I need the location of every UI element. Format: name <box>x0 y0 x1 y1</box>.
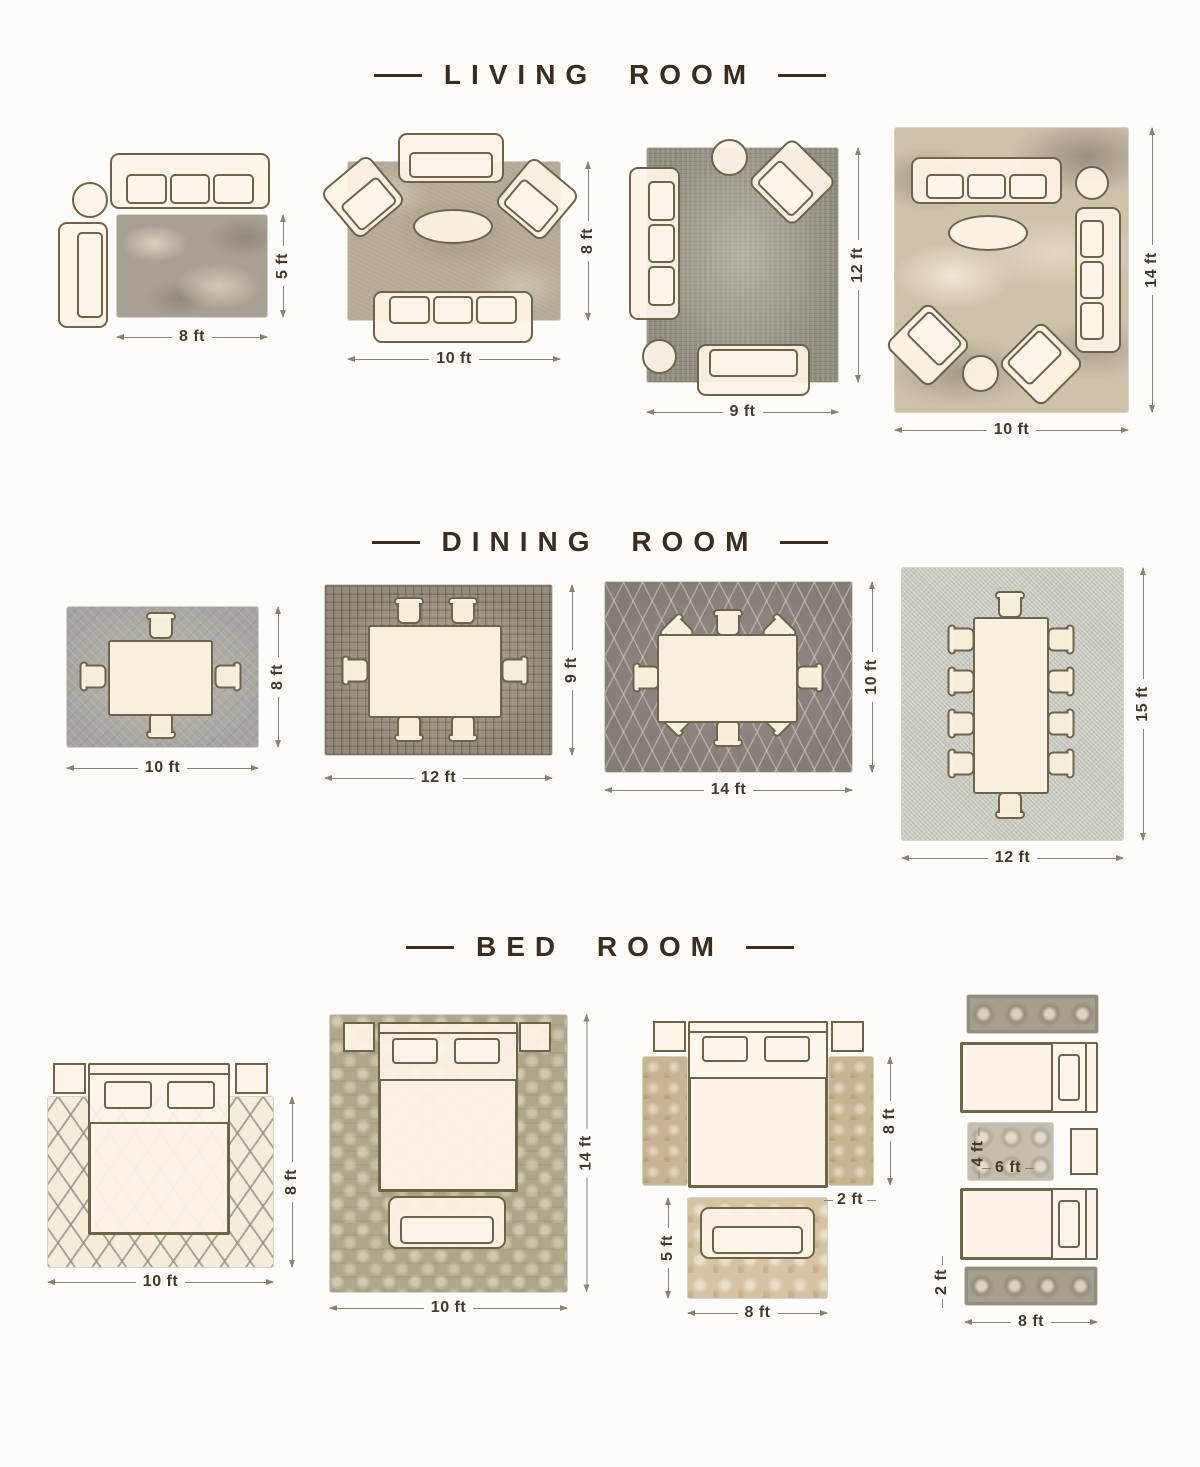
rug <box>117 215 267 317</box>
dining-chair <box>448 597 478 624</box>
pillow <box>454 1038 500 1064</box>
foot-rug-width-dimension: 8 ft <box>688 1303 827 1323</box>
headboard <box>379 1024 517 1034</box>
pillow <box>702 1036 748 1062</box>
runner-width-dimension: 2 ft <box>824 1190 882 1210</box>
height-dimension: 15 ft <box>1133 568 1153 840</box>
sofa <box>110 153 270 209</box>
dining-chair <box>394 715 424 742</box>
width-dimension: 12 ft <box>902 848 1123 868</box>
pillow <box>764 1036 810 1062</box>
pillow <box>1058 1200 1080 1248</box>
rug-size-guide: LIVING ROOM DINING ROOM BED ROOM 8 ft 5 … <box>0 0 1200 1467</box>
width-dimension: 10 ft <box>330 1298 567 1318</box>
runner-height-dimension: 8 ft <box>880 1057 900 1185</box>
duvet <box>961 1189 1053 1259</box>
foot-rug-height-dimension: 5 ft <box>658 1198 678 1298</box>
side-table <box>1075 166 1109 200</box>
sofa-cushions <box>409 152 493 179</box>
sofa-cushions <box>126 174 254 204</box>
twin-bed <box>960 1188 1098 1260</box>
side-table <box>962 355 999 392</box>
twin-bed <box>960 1042 1098 1113</box>
title-dash <box>374 74 422 77</box>
height-dimension: 8 ft <box>268 607 288 747</box>
coffee-table <box>948 215 1028 251</box>
nightstand <box>235 1063 268 1094</box>
dining-chair <box>948 749 975 779</box>
width-dimension: 14 ft <box>605 780 852 800</box>
loveseat <box>398 133 504 183</box>
headboard <box>1085 1043 1096 1112</box>
section-title-living-room: LIVING ROOM <box>0 59 1200 91</box>
dining-chair <box>342 656 369 686</box>
sofa <box>911 157 1062 204</box>
headboard <box>89 1065 229 1075</box>
nightstand <box>1070 1128 1098 1175</box>
dining-chair <box>797 663 824 693</box>
section-title-text: DINING ROOM <box>442 526 759 558</box>
dining-chair <box>146 712 176 739</box>
nightstand <box>343 1022 375 1052</box>
section-title-bed-room: BED ROOM <box>0 931 1200 963</box>
runner-rug <box>967 995 1098 1033</box>
sofa-cushions <box>389 296 517 324</box>
height-dimension: 14 ft <box>577 1015 597 1292</box>
dining-chair <box>995 591 1025 618</box>
runner-rug <box>965 1267 1097 1305</box>
sofa-cushions <box>712 1226 803 1254</box>
nightstand <box>831 1021 864 1052</box>
bed <box>688 1021 828 1188</box>
dining-chair <box>713 609 743 636</box>
loveseat <box>697 344 810 396</box>
dining-chair <box>633 663 660 693</box>
title-dash <box>406 946 454 949</box>
runner-rug <box>643 1057 687 1185</box>
title-dash <box>746 946 794 949</box>
oval-dining-table <box>657 634 798 723</box>
side-table <box>642 339 677 374</box>
sofa-cushions <box>926 174 1047 199</box>
runner-height-dimension: 2 ft <box>932 1264 952 1308</box>
height-dimension: 9 ft <box>562 585 582 755</box>
dining-chair <box>502 656 529 686</box>
sofa-cushions <box>648 181 675 306</box>
height-dimension: 8 ft <box>578 162 598 320</box>
coffee-table <box>413 209 493 244</box>
dining-chair <box>713 720 743 747</box>
dining-chair <box>948 667 975 697</box>
height-dimension: 8 ft <box>282 1097 302 1267</box>
width-dimension: 8 ft <box>117 327 267 347</box>
headboard <box>1085 1189 1096 1259</box>
dining-chair <box>1048 625 1075 655</box>
title-dash <box>778 74 826 77</box>
section-title-text: BED ROOM <box>476 931 724 963</box>
height-dimension: 14 ft <box>1142 128 1162 412</box>
nightstand <box>519 1022 551 1052</box>
width-dimension: 10 ft <box>67 758 258 778</box>
sofa-cushions <box>709 349 798 377</box>
width-dimension: 10 ft <box>348 349 560 369</box>
loveseat <box>58 222 108 328</box>
height-dimension: 10 ft <box>862 582 882 772</box>
loveseat <box>700 1207 815 1259</box>
between-rug-width-dimension: 6 ft <box>982 1158 1044 1178</box>
duvet <box>379 1079 517 1191</box>
dining-chair <box>995 792 1025 819</box>
dining-table <box>973 617 1049 794</box>
sofa-cushions <box>1080 220 1104 339</box>
dining-chair <box>1048 709 1075 739</box>
dining-chair <box>948 625 975 655</box>
dining-chair <box>948 709 975 739</box>
dining-chair <box>215 662 242 692</box>
section-title-text: LIVING ROOM <box>444 59 756 91</box>
title-dash <box>372 541 420 544</box>
nightstand <box>653 1021 686 1052</box>
bench <box>388 1196 506 1249</box>
bench-cushion <box>400 1216 494 1244</box>
width-dimension: 9 ft <box>647 402 838 422</box>
dining-table <box>368 625 502 718</box>
sofa <box>629 167 680 320</box>
width-dimension: 12 ft <box>325 768 552 788</box>
dining-chair <box>1048 749 1075 779</box>
pillow <box>1058 1054 1080 1101</box>
height-dimension: 5 ft <box>273 215 293 317</box>
width-dimension: 10 ft <box>895 420 1128 440</box>
width-dimension: 10 ft <box>48 1272 273 1292</box>
title-dash <box>780 541 828 544</box>
bed <box>378 1022 518 1192</box>
height-dimension: 12 ft <box>848 148 868 382</box>
dining-table <box>108 640 213 716</box>
section-title-dining-room: DINING ROOM <box>0 526 1200 558</box>
pillow <box>167 1081 215 1109</box>
dining-chair <box>146 612 176 639</box>
pillow <box>104 1081 152 1109</box>
pillow <box>392 1038 438 1064</box>
dining-chair <box>80 662 107 692</box>
dining-chair <box>1048 667 1075 697</box>
headboard <box>689 1023 827 1033</box>
duvet <box>961 1043 1053 1112</box>
side-table <box>711 139 748 176</box>
dining-chair <box>448 715 478 742</box>
nightstand <box>53 1063 86 1094</box>
sofa <box>1075 207 1121 353</box>
side-table <box>72 182 108 218</box>
sofa <box>373 291 533 343</box>
sofa-cushions <box>77 232 103 318</box>
runner-width-dimension: 8 ft <box>965 1312 1097 1332</box>
duvet <box>689 1077 827 1187</box>
bed <box>88 1063 230 1235</box>
duvet <box>89 1122 229 1234</box>
dining-chair <box>394 597 424 624</box>
runner-rug <box>829 1057 873 1185</box>
